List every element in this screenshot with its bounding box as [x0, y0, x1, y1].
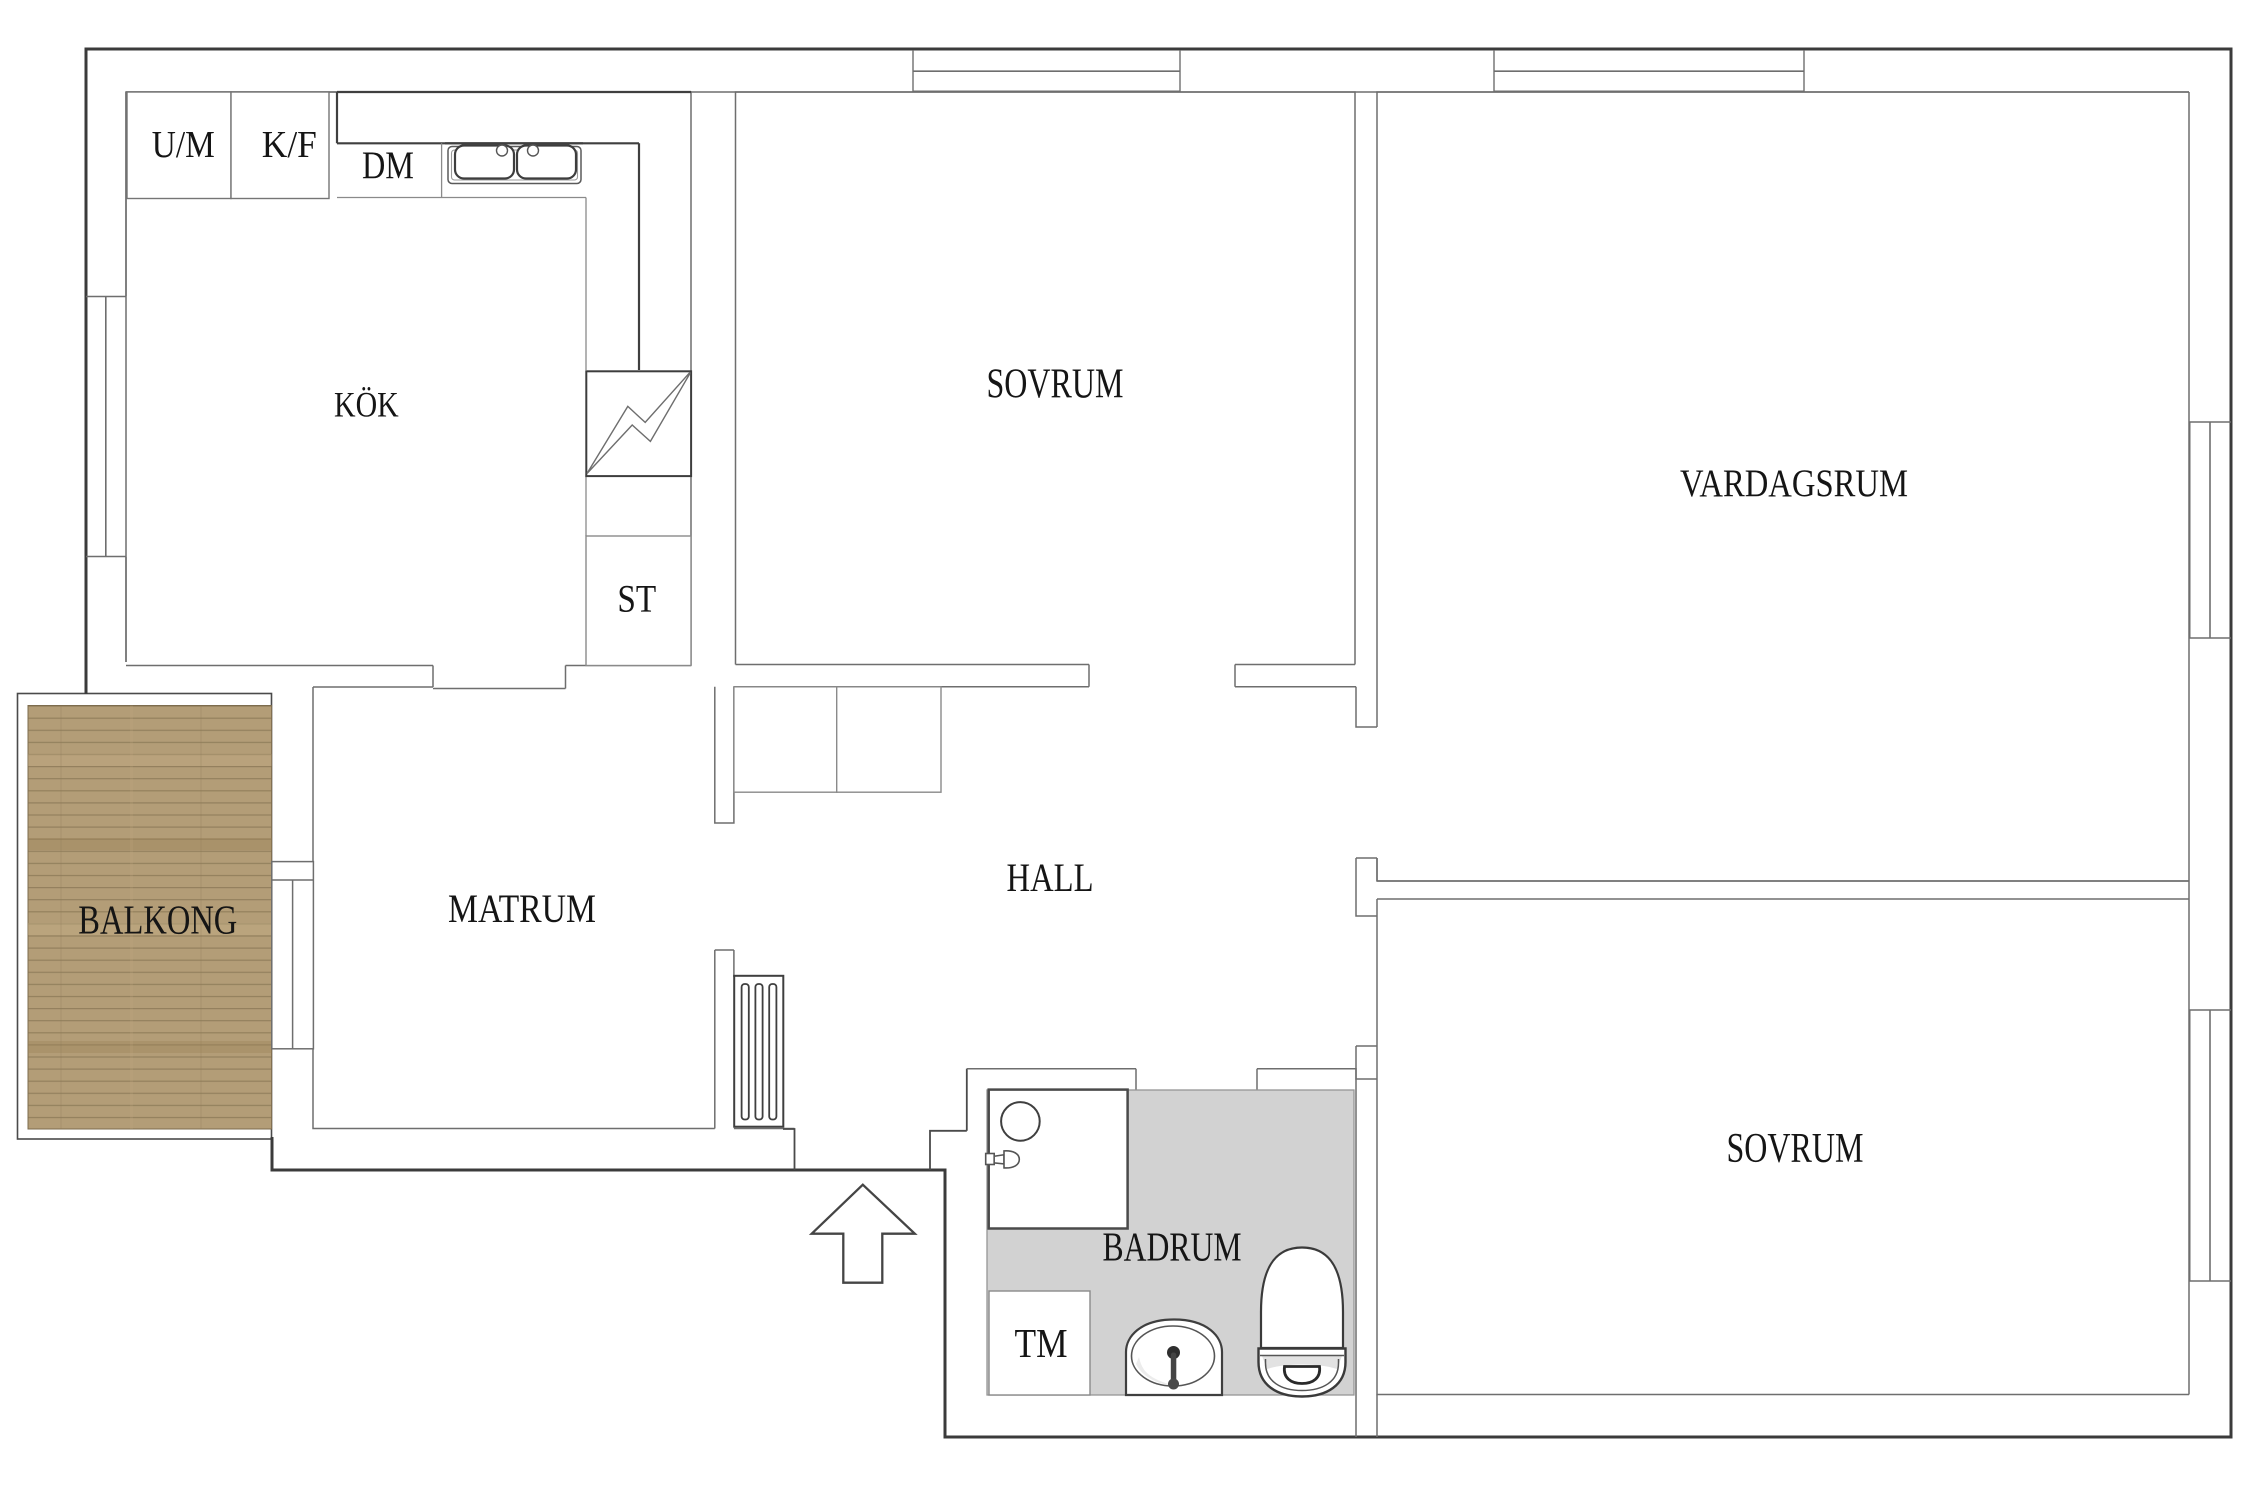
svg-text:VARDAGSRUM: VARDAGSRUM [1680, 461, 1908, 505]
svg-text:HALL: HALL [1007, 855, 1094, 900]
svg-text:U/M: U/M [152, 125, 215, 166]
svg-text:SOVRUM: SOVRUM [1727, 1125, 1864, 1172]
svg-text:BADRUM: BADRUM [1103, 1224, 1242, 1270]
svg-text:K/F: K/F [262, 125, 317, 166]
svg-text:BALKONG: BALKONG [78, 898, 237, 943]
svg-text:ST: ST [617, 578, 656, 620]
svg-text:SOVRUM: SOVRUM [987, 361, 1124, 408]
svg-text:KÖK: KÖK [334, 384, 399, 424]
svg-text:DM: DM [362, 143, 414, 187]
svg-text:TM: TM [1015, 1321, 1068, 1366]
svg-text:MATRUM: MATRUM [448, 886, 596, 931]
